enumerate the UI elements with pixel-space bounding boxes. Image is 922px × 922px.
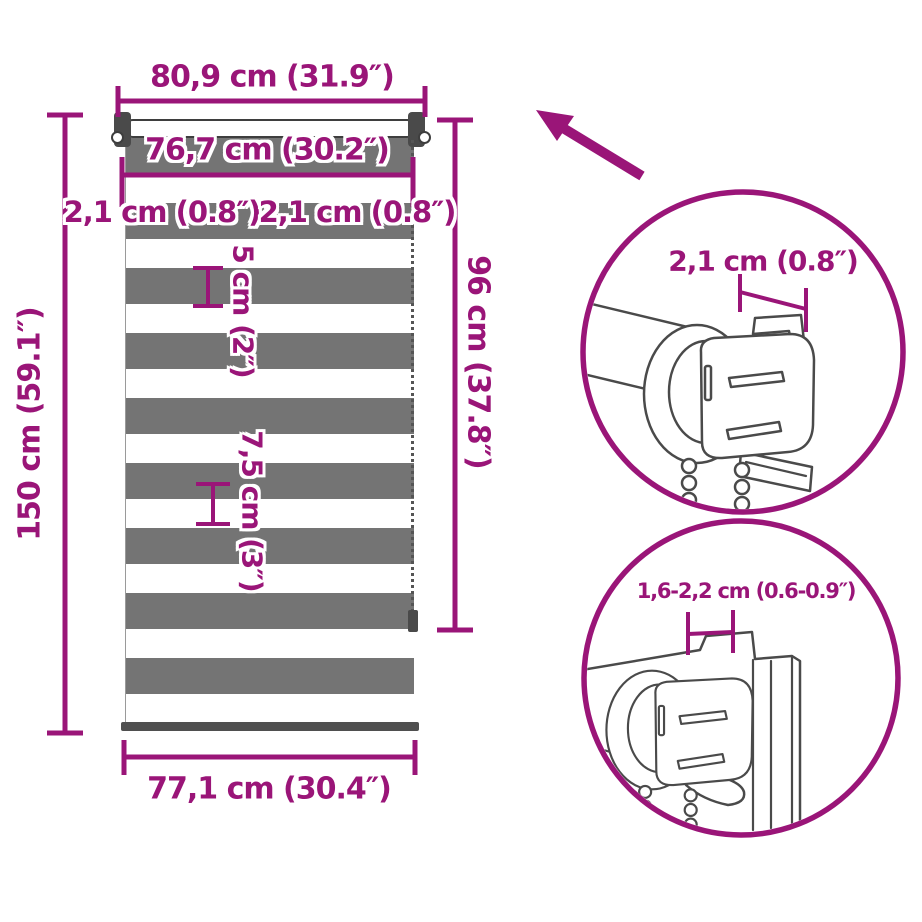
label-detail-bottom: 1,6-2,2 cm (0.6-0.9″): [637, 579, 856, 603]
label-height-total: 150 cm (59.1″): [13, 307, 48, 540]
dim-width-bottom-lines: [124, 740, 415, 775]
label-detail-top: 2,1 cm (0.8″): [668, 245, 858, 278]
dim-stripe-small-lines: [193, 268, 223, 306]
up-left-arrow-icon: [536, 110, 642, 176]
label-width-total: 80,9 cm (31.9″): [150, 60, 394, 95]
detail-top-illustration: [575, 300, 814, 528]
detail-bottom-illustration: [570, 632, 800, 845]
label-gap-right: 2,1 cm (0.8″): [259, 195, 456, 229]
label-height-fabric: 96 cm (37.8″): [461, 255, 496, 469]
label-width-bottom: 77,1 cm (30.4″): [147, 772, 391, 807]
dim-stripe-large-lines: [196, 484, 230, 524]
label-stripe-small: 5 cm (2″): [227, 244, 260, 377]
diagram-canvas: 80,9 cm (31.9″) 76,7 cm (30.2″) 2,1 cm (…: [0, 0, 922, 922]
label-stripe-large: 7,5 cm (3″): [236, 430, 269, 591]
label-gap-left: 2,1 cm (0.8″): [64, 195, 261, 229]
label-width-fabric: 76,7 cm (30.2″): [145, 133, 389, 168]
